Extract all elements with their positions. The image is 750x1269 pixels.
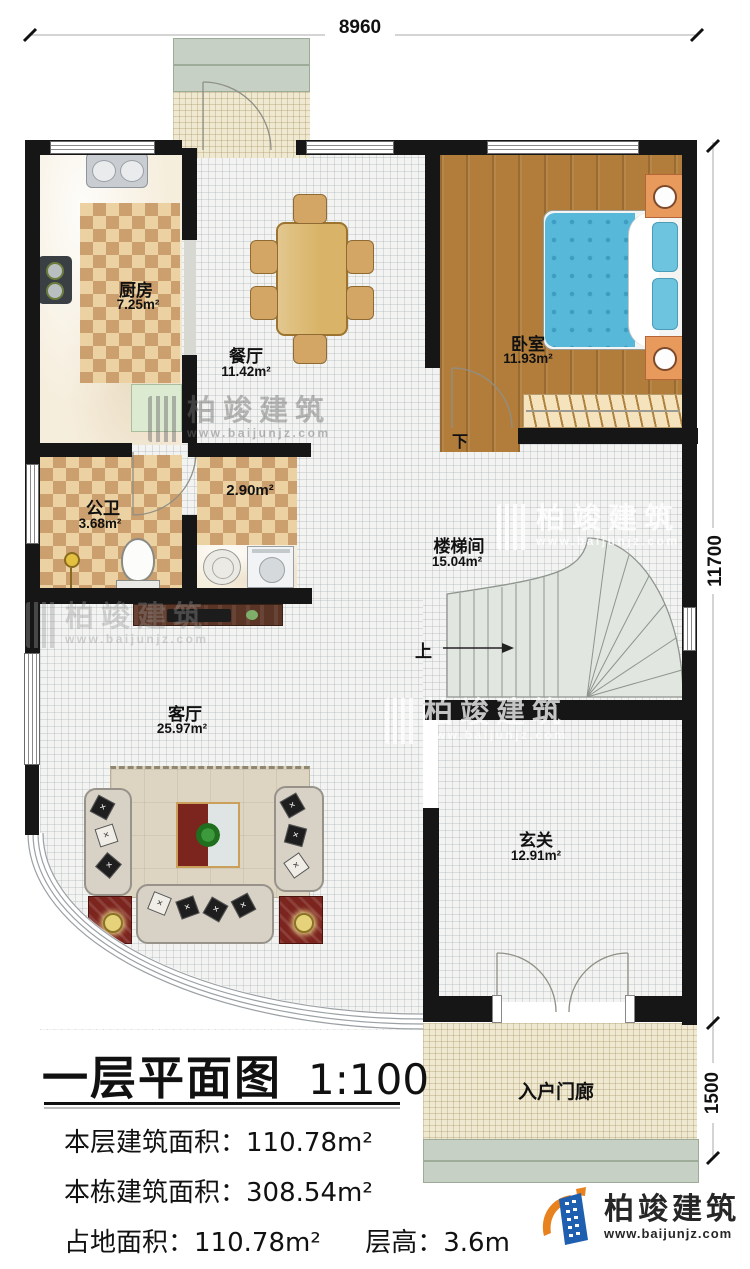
title-underline-shadow — [44, 1107, 400, 1109]
stat-label: 本栋建筑面积： — [64, 1177, 246, 1207]
room-area-bath: 3.68m² — [79, 516, 122, 531]
wall — [425, 150, 440, 368]
title-underline — [44, 1102, 400, 1105]
living-window — [24, 653, 40, 765]
floor-plan-page: × × × × × × × × × × — [0, 0, 750, 1269]
plan-title: 一层平面图 1:100 — [42, 1042, 429, 1108]
room-area-foyer: 12.91m² — [511, 848, 561, 863]
entry-door-leaves — [497, 953, 628, 1012]
room-area-washroom: 2.90m² — [226, 482, 274, 499]
room-area-living: 25.97m² — [157, 721, 207, 736]
room-area-kitchen: 7.25m² — [117, 297, 160, 312]
staircase — [447, 538, 683, 697]
wall — [25, 588, 312, 604]
stat-floor-area: 本层建筑面积：110.78m² — [64, 1122, 373, 1159]
dim-top: 8960 — [325, 17, 395, 39]
wall — [182, 148, 197, 240]
stat-label: 层高： — [365, 1227, 443, 1257]
entry-door-arc-right — [569, 953, 628, 1012]
entry-door-arc-left — [497, 953, 556, 1012]
wall — [423, 808, 439, 1006]
bathroom-window — [26, 464, 39, 544]
stat-value: 110.78m² — [246, 1128, 373, 1158]
bath-door-arc — [133, 452, 196, 515]
dining-window — [306, 141, 394, 154]
wall — [682, 140, 697, 1025]
stairs-up-label: 上 — [415, 637, 432, 662]
room-area-dining: 11.42m² — [221, 364, 271, 379]
kitchen-window — [50, 141, 155, 154]
stat-value: 308.54m² — [246, 1178, 373, 1208]
dim-right-main: 11700 — [705, 528, 727, 594]
company-logo-url: www.baijunjz.com — [604, 1226, 740, 1241]
bedroom-door-arc — [452, 368, 512, 428]
wall — [627, 996, 697, 1022]
bedroom-window — [487, 141, 639, 154]
room-area-stairwell: 15.04m² — [432, 554, 482, 569]
plan-title-text: 一层平面图 — [42, 1042, 282, 1108]
stat-label: 占地面积： — [64, 1227, 194, 1257]
company-logo-brand: 柏竣建筑 — [604, 1193, 740, 1226]
dim-right-porch: 1500 — [702, 1063, 724, 1123]
plan-scale: 1:100 — [308, 1055, 429, 1104]
wall — [188, 443, 311, 457]
stairwell-window — [683, 607, 696, 651]
door-frame — [625, 995, 635, 1023]
stat-value: 110.78m² — [194, 1228, 321, 1258]
company-logo: 柏竣建筑 www.baijunjz.com — [538, 1186, 740, 1248]
company-logo-icon — [538, 1186, 596, 1248]
stat-building-area: 本栋建筑面积：308.54m² — [64, 1172, 373, 1209]
stat-label: 本层建筑面积： — [64, 1127, 246, 1157]
door-frame — [492, 995, 502, 1023]
stairs-down-label: 下 — [452, 428, 468, 452]
kitchen-opening — [184, 240, 196, 355]
wall — [25, 140, 40, 658]
room-area-bedroom: 11.93m² — [503, 351, 553, 366]
wall — [423, 996, 498, 1022]
room-label-porch: 入户门廊 — [518, 1077, 594, 1104]
wall — [182, 355, 197, 443]
wall — [25, 763, 39, 835]
back-door-arc — [203, 82, 271, 150]
door-swings — [133, 82, 628, 1012]
wall — [25, 443, 132, 457]
stat-footprint-height: 占地面积：110.78m² 层高：3.6m — [64, 1222, 510, 1259]
wall — [518, 428, 698, 444]
wall — [425, 700, 697, 720]
stat-value: 3.6m — [443, 1228, 510, 1258]
